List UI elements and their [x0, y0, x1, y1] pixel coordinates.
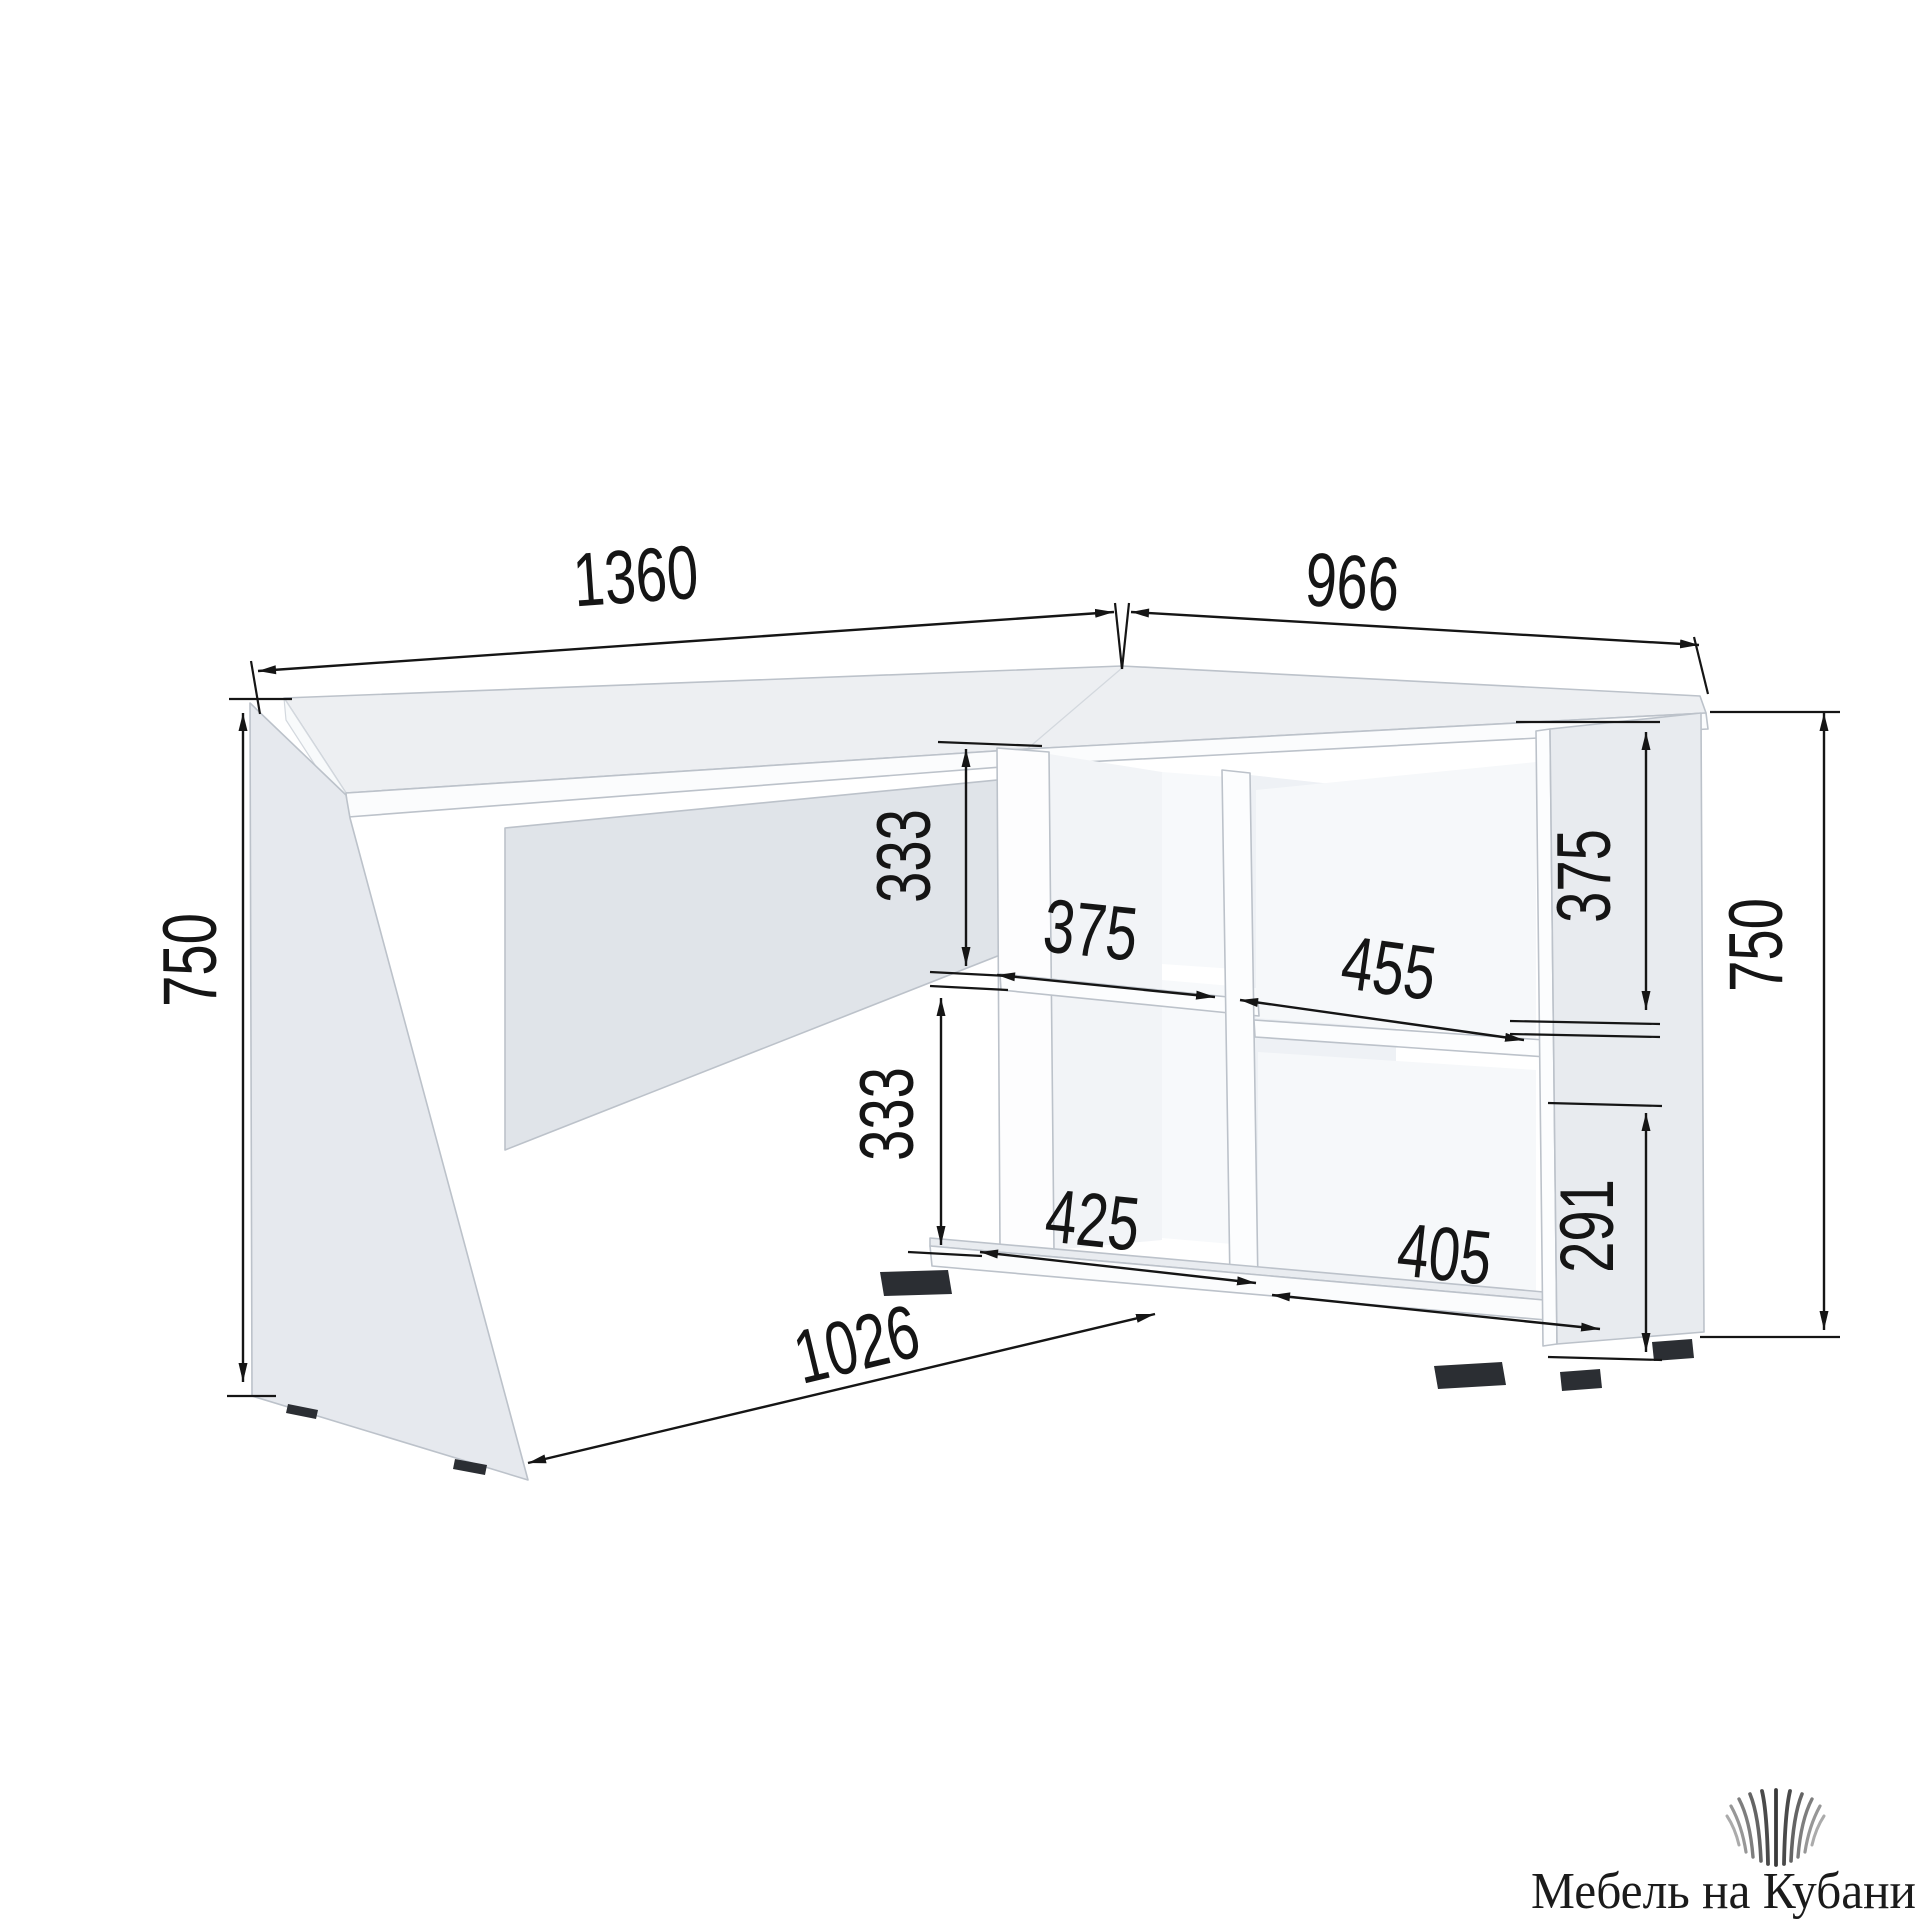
dim-left-height-label: 750 [148, 913, 233, 1007]
foot [1560, 1369, 1602, 1391]
diagram-canvas: 1360 966 750 333 375 [0, 0, 1920, 1920]
foot [1434, 1362, 1506, 1389]
desk-artwork [250, 666, 1708, 1480]
dim-left-shelf-top-width-label: 375 [1039, 883, 1141, 978]
dim-right-height: 750 [1700, 712, 1840, 1337]
extension-line [1122, 603, 1129, 669]
brand-name-text: Мебель на Кубани [1531, 1862, 1916, 1919]
foot [1652, 1339, 1694, 1361]
dim-wing-depth-label: 966 [1303, 537, 1402, 628]
dim-upper-gap-label: 333 [862, 809, 947, 903]
dim-lower-gap-label: 333 [845, 1067, 930, 1161]
furniture-dimension-diagram: 1360 966 750 333 375 [0, 0, 1920, 1920]
dim-base-width: 1026 [528, 1289, 1155, 1463]
desk-left-side-panel [250, 703, 528, 1480]
dim-wing-shelf-width-label: 455 [1336, 920, 1441, 1017]
dimension-line [258, 612, 1114, 671]
dim-base-width-label: 1026 [786, 1289, 928, 1401]
dim-wing-lower-width-label: 405 [1393, 1207, 1495, 1302]
dim-right-height-label: 750 [1714, 898, 1799, 992]
dim-left-shelf-bottom-width-label: 425 [1041, 1173, 1143, 1268]
extension-line [1548, 1357, 1662, 1360]
extension-line [930, 986, 1008, 990]
dimension-line [1131, 612, 1699, 645]
brand-watermark: Мебель на Кубани [1531, 1790, 1916, 1919]
extension-line [1115, 603, 1122, 669]
dim-lower-gap: 333 [845, 998, 982, 1256]
dim-wing-upper-height-label: 375 [1542, 829, 1627, 923]
dim-wing-lower-height-label: 291 [1545, 1179, 1630, 1273]
dim-desk-width-label: 1360 [570, 530, 701, 624]
fan-lines-logo-icon [1727, 1790, 1824, 1865]
shelf-left-support [997, 748, 1054, 1252]
